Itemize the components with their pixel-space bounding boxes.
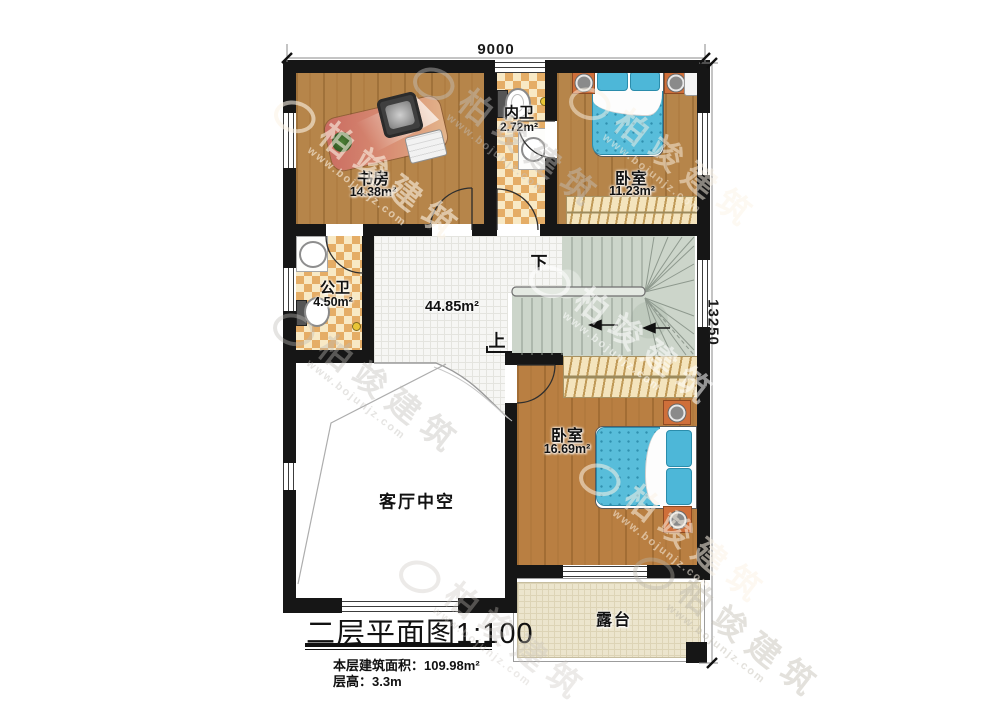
- pillow-right-bedroom1: [630, 71, 660, 91]
- wardrobe-bedroom2: [563, 356, 699, 398]
- wall-innerbath-bedroom1-a: [545, 60, 557, 121]
- bedroom1-area: 11.23m²: [609, 184, 655, 198]
- window-top-innerbath: [495, 60, 545, 73]
- watermark-logo-icon: [396, 556, 444, 597]
- wall-right-2: [697, 175, 710, 260]
- sink-basin-public-bath: [299, 241, 327, 268]
- wall-bedroom2-left: [505, 403, 517, 598]
- bedroom2-area: 16.69m²: [544, 442, 591, 456]
- wall-left-2: [283, 168, 296, 268]
- wall-stair-bedroom2: [505, 353, 563, 365]
- void-outline: [298, 364, 446, 584]
- potted-plant: [332, 132, 352, 152]
- vanity-public-bath: [296, 236, 328, 272]
- nightstand-bottom-bedroom2: [663, 506, 692, 533]
- lamp-icon: [669, 511, 686, 528]
- window-left-publicbath: [283, 268, 296, 311]
- public-bath-area: 4.50m²: [313, 295, 353, 309]
- title-underline-thin: [305, 649, 492, 650]
- window-left-void: [283, 463, 296, 490]
- stairs-up-label: 上: [489, 327, 506, 352]
- wall-publicbath-right: [362, 224, 374, 363]
- wall-bedroom2-bottom-right: [647, 565, 710, 578]
- headboard-cushion-bottom-bedroom2: [666, 468, 692, 505]
- lamp-icon: [575, 74, 592, 91]
- wall-left-4: [283, 490, 296, 613]
- floor-height-note: 层高：3.3m: [333, 671, 402, 690]
- wall-left-1: [283, 60, 296, 113]
- wall-publicbath-bottom: [283, 350, 374, 363]
- doorway-publicbath: [326, 224, 363, 236]
- wall-mid-1: [283, 224, 326, 236]
- terrace-pillar: [686, 642, 707, 663]
- doorway-innerbath: [545, 121, 557, 158]
- void-label: 客厅中空: [379, 488, 455, 513]
- wall-top-right: [545, 60, 710, 73]
- window-right-bedroom1: [697, 113, 710, 175]
- watermark-url: www.bojunjz.com: [304, 358, 446, 473]
- pillow-left-bedroom1: [597, 71, 628, 91]
- nightstand-left-bedroom1: [572, 71, 595, 94]
- terrace-label: 露台: [596, 606, 632, 630]
- terrace-sliding-door: [563, 566, 647, 577]
- wall-right-1: [697, 60, 710, 113]
- monitor-screen: [384, 100, 415, 130]
- nightstand-top-bedroom2: [663, 400, 691, 425]
- dimension-top-value: 9000: [466, 41, 526, 58]
- window-left-study: [283, 113, 296, 168]
- wall-left-3: [283, 311, 296, 463]
- wall-study-innerbath: [484, 60, 497, 236]
- headboard-cushion-top-bedroom2: [666, 430, 692, 467]
- floor-drain-public-bath: [352, 322, 361, 331]
- wall-top-left: [283, 60, 495, 73]
- wall-mid-3: [472, 224, 497, 236]
- wall-right-3: [697, 327, 710, 580]
- sink-basin-inner-bath: [521, 137, 546, 162]
- inner-bath-area: 2.72m²: [500, 120, 538, 134]
- vanity-inner-bath: [518, 128, 547, 170]
- doorway-bedroom2: [505, 365, 517, 403]
- lamp-icon: [667, 74, 684, 91]
- stairs-down-label: 下: [531, 249, 548, 274]
- hall-area: 44.85m²: [425, 299, 479, 315]
- study-area: 14.38m²: [350, 185, 397, 199]
- title-underline-thick: [305, 643, 492, 647]
- dimension-right-value: 13250: [705, 293, 722, 353]
- lamp-icon: [669, 404, 686, 421]
- wall-mid-4: [540, 224, 710, 236]
- floor-plan-canvas: 书房 14.38m² 内卫 2.72m² 卧室 11.23m² 公卫 4.50m…: [0, 0, 1000, 706]
